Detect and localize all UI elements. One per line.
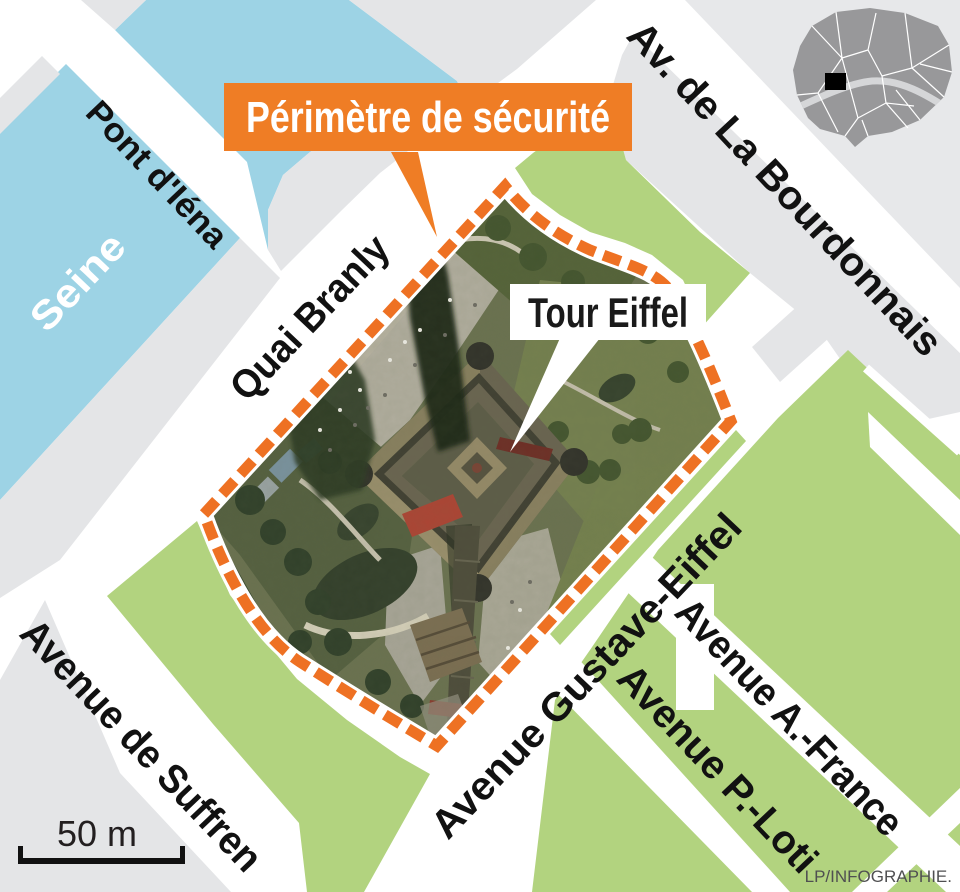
svg-text:50 m: 50 m	[57, 813, 137, 854]
svg-text:Tour Eiffel: Tour Eiffel	[528, 289, 688, 336]
svg-text:Périmètre de sécurité: Périmètre de sécurité	[246, 93, 610, 142]
svg-text:LP/INFOGRAPHIE.: LP/INFOGRAPHIE.	[805, 867, 952, 886]
